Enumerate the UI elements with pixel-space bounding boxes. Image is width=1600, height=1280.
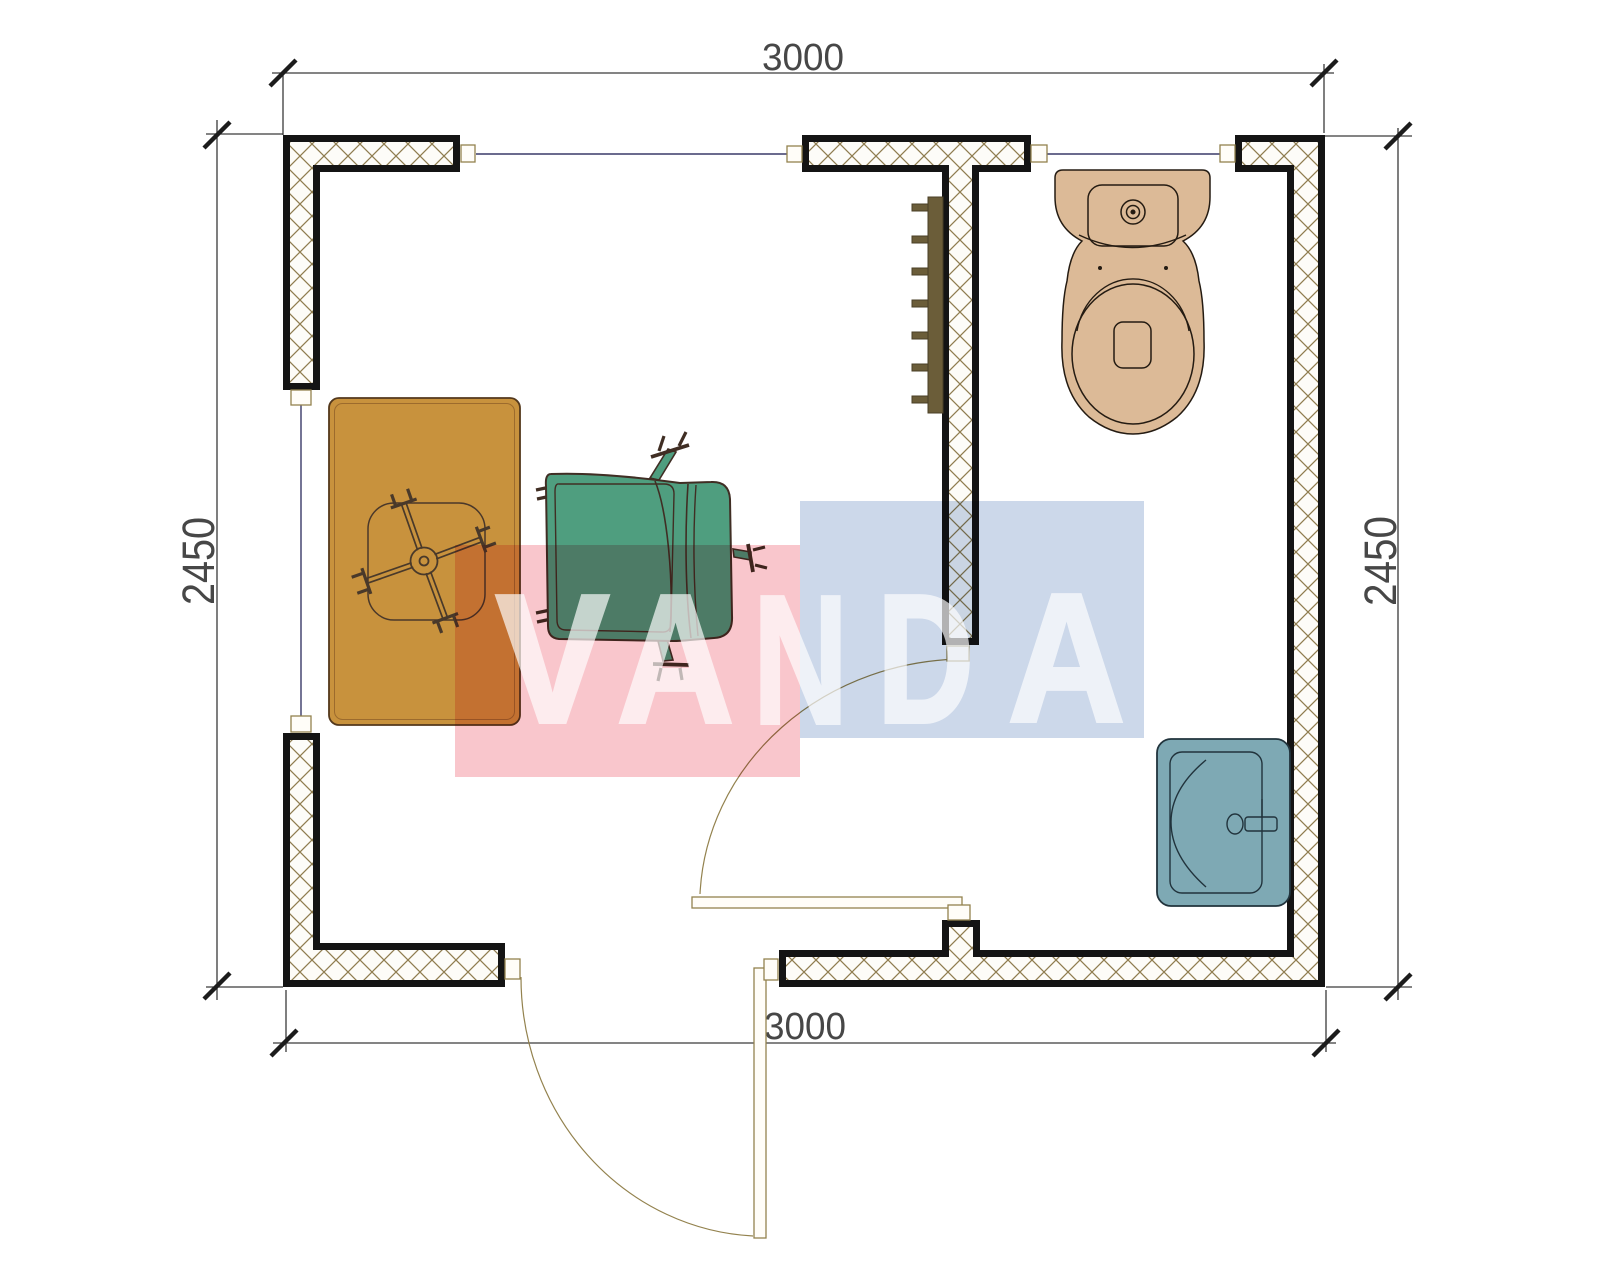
svg-text:V: V — [496, 556, 609, 761]
svg-text:A: A — [1008, 555, 1125, 760]
svg-text:N: N — [753, 557, 848, 762]
svg-text:2450: 2450 — [173, 517, 224, 605]
svg-text:2450: 2450 — [1355, 516, 1406, 606]
svg-text:3000: 3000 — [764, 1006, 846, 1048]
svg-text:A: A — [617, 556, 734, 761]
svg-text:3000: 3000 — [762, 37, 844, 79]
svg-text:D: D — [877, 556, 974, 761]
